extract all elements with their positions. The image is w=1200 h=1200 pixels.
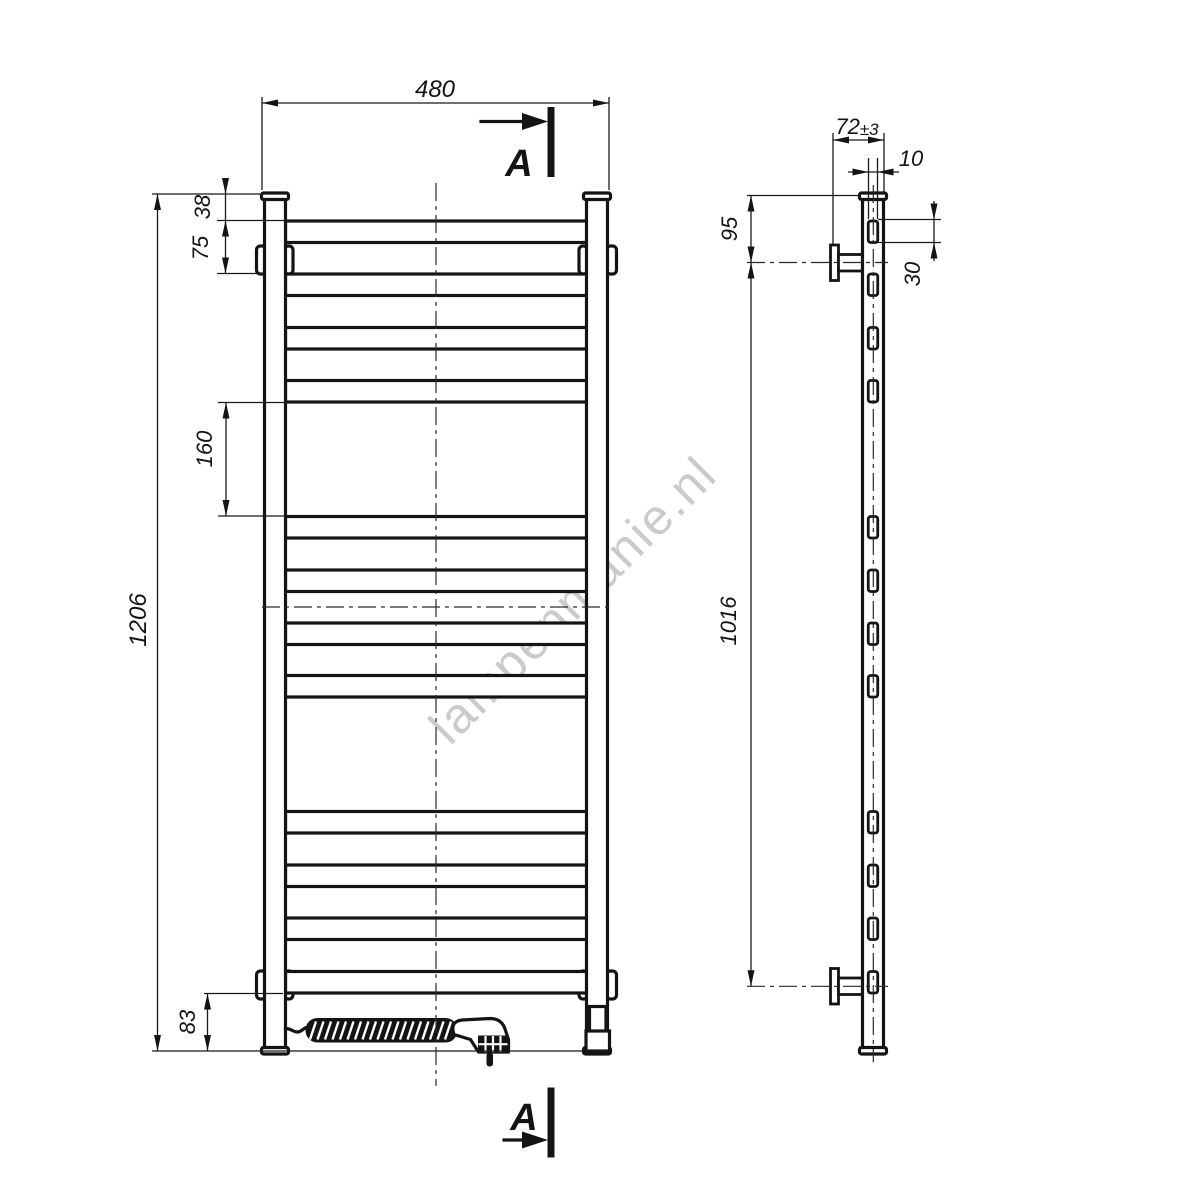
side-view xyxy=(747,185,888,1062)
arrowhead-icon xyxy=(222,221,229,237)
dim-label-83: 83 xyxy=(175,1009,200,1034)
dim-label-160: 160 xyxy=(192,430,217,467)
dim-overall-width: 480 xyxy=(262,76,609,190)
arrowhead-icon xyxy=(931,243,938,259)
arrowhead-icon xyxy=(748,970,755,986)
dim-label-30: 30 xyxy=(900,261,925,286)
side-dimensions: 72±3 10 95 30 xyxy=(716,114,941,986)
section-cut-bar xyxy=(548,107,555,177)
arrowhead-icon xyxy=(154,194,161,210)
watermark-text: lampenmanie.nl xyxy=(418,445,727,754)
arrowhead-icon xyxy=(748,247,755,263)
right-post-top-cap xyxy=(584,193,611,200)
arrowhead-icon xyxy=(878,169,894,176)
arrowhead-icon xyxy=(262,100,278,107)
power-cord xyxy=(286,1018,509,1067)
dim-label-1016: 1016 xyxy=(716,596,741,646)
arrowhead-icon xyxy=(223,500,230,516)
section-cut-bar xyxy=(548,1088,555,1158)
arrowhead-icon xyxy=(222,258,229,274)
arrowhead-icon xyxy=(931,204,938,220)
front-view xyxy=(257,183,617,1086)
dim-rail-pitch: 75 xyxy=(188,235,266,273)
dim-label-72: 72±3 xyxy=(835,114,879,139)
plug-pin xyxy=(487,1053,494,1067)
heating-element-housing xyxy=(586,1007,610,1052)
arrowhead-icon xyxy=(223,403,230,419)
arrowhead-icon xyxy=(748,196,755,212)
arrowhead-icon xyxy=(204,994,211,1010)
left-post-top-cap xyxy=(262,193,289,200)
section-label-top: A xyxy=(504,143,532,185)
dim-rail-thickness: 10 xyxy=(848,146,924,219)
technical-drawing-page: lampenmanie.nl xyxy=(0,0,1200,1200)
arrowhead-icon xyxy=(748,263,755,279)
heater-box-lower xyxy=(586,1031,610,1051)
arrowhead-icon xyxy=(154,1035,161,1051)
dim-label-1206: 1206 xyxy=(125,593,152,647)
section-label-bottom: A xyxy=(509,1097,537,1139)
right-post xyxy=(587,196,608,1052)
section-marker-bottom: A xyxy=(504,1088,555,1158)
dim-label-95: 95 xyxy=(717,216,742,241)
arrowhead-icon xyxy=(853,169,869,176)
dim-bracket-spacing: 1016 xyxy=(716,263,755,987)
dim-label-480: 480 xyxy=(415,76,456,103)
dim-label-75: 75 xyxy=(188,235,213,260)
heater-box-upper xyxy=(590,1007,607,1033)
towel-radiator-drawing: lampenmanie.nl xyxy=(0,0,1200,1200)
dim-label-10: 10 xyxy=(899,146,924,171)
arrowhead-icon xyxy=(222,178,229,194)
left-post xyxy=(265,196,286,1052)
power-plug xyxy=(453,1019,509,1067)
dim-label-38: 38 xyxy=(190,194,215,219)
section-marker-top: A xyxy=(481,107,555,185)
arrowhead-icon xyxy=(593,100,609,107)
arrowhead-icon xyxy=(204,1035,211,1051)
section-arrow-icon xyxy=(522,113,548,130)
dim-rail-height: 30 xyxy=(878,201,941,286)
